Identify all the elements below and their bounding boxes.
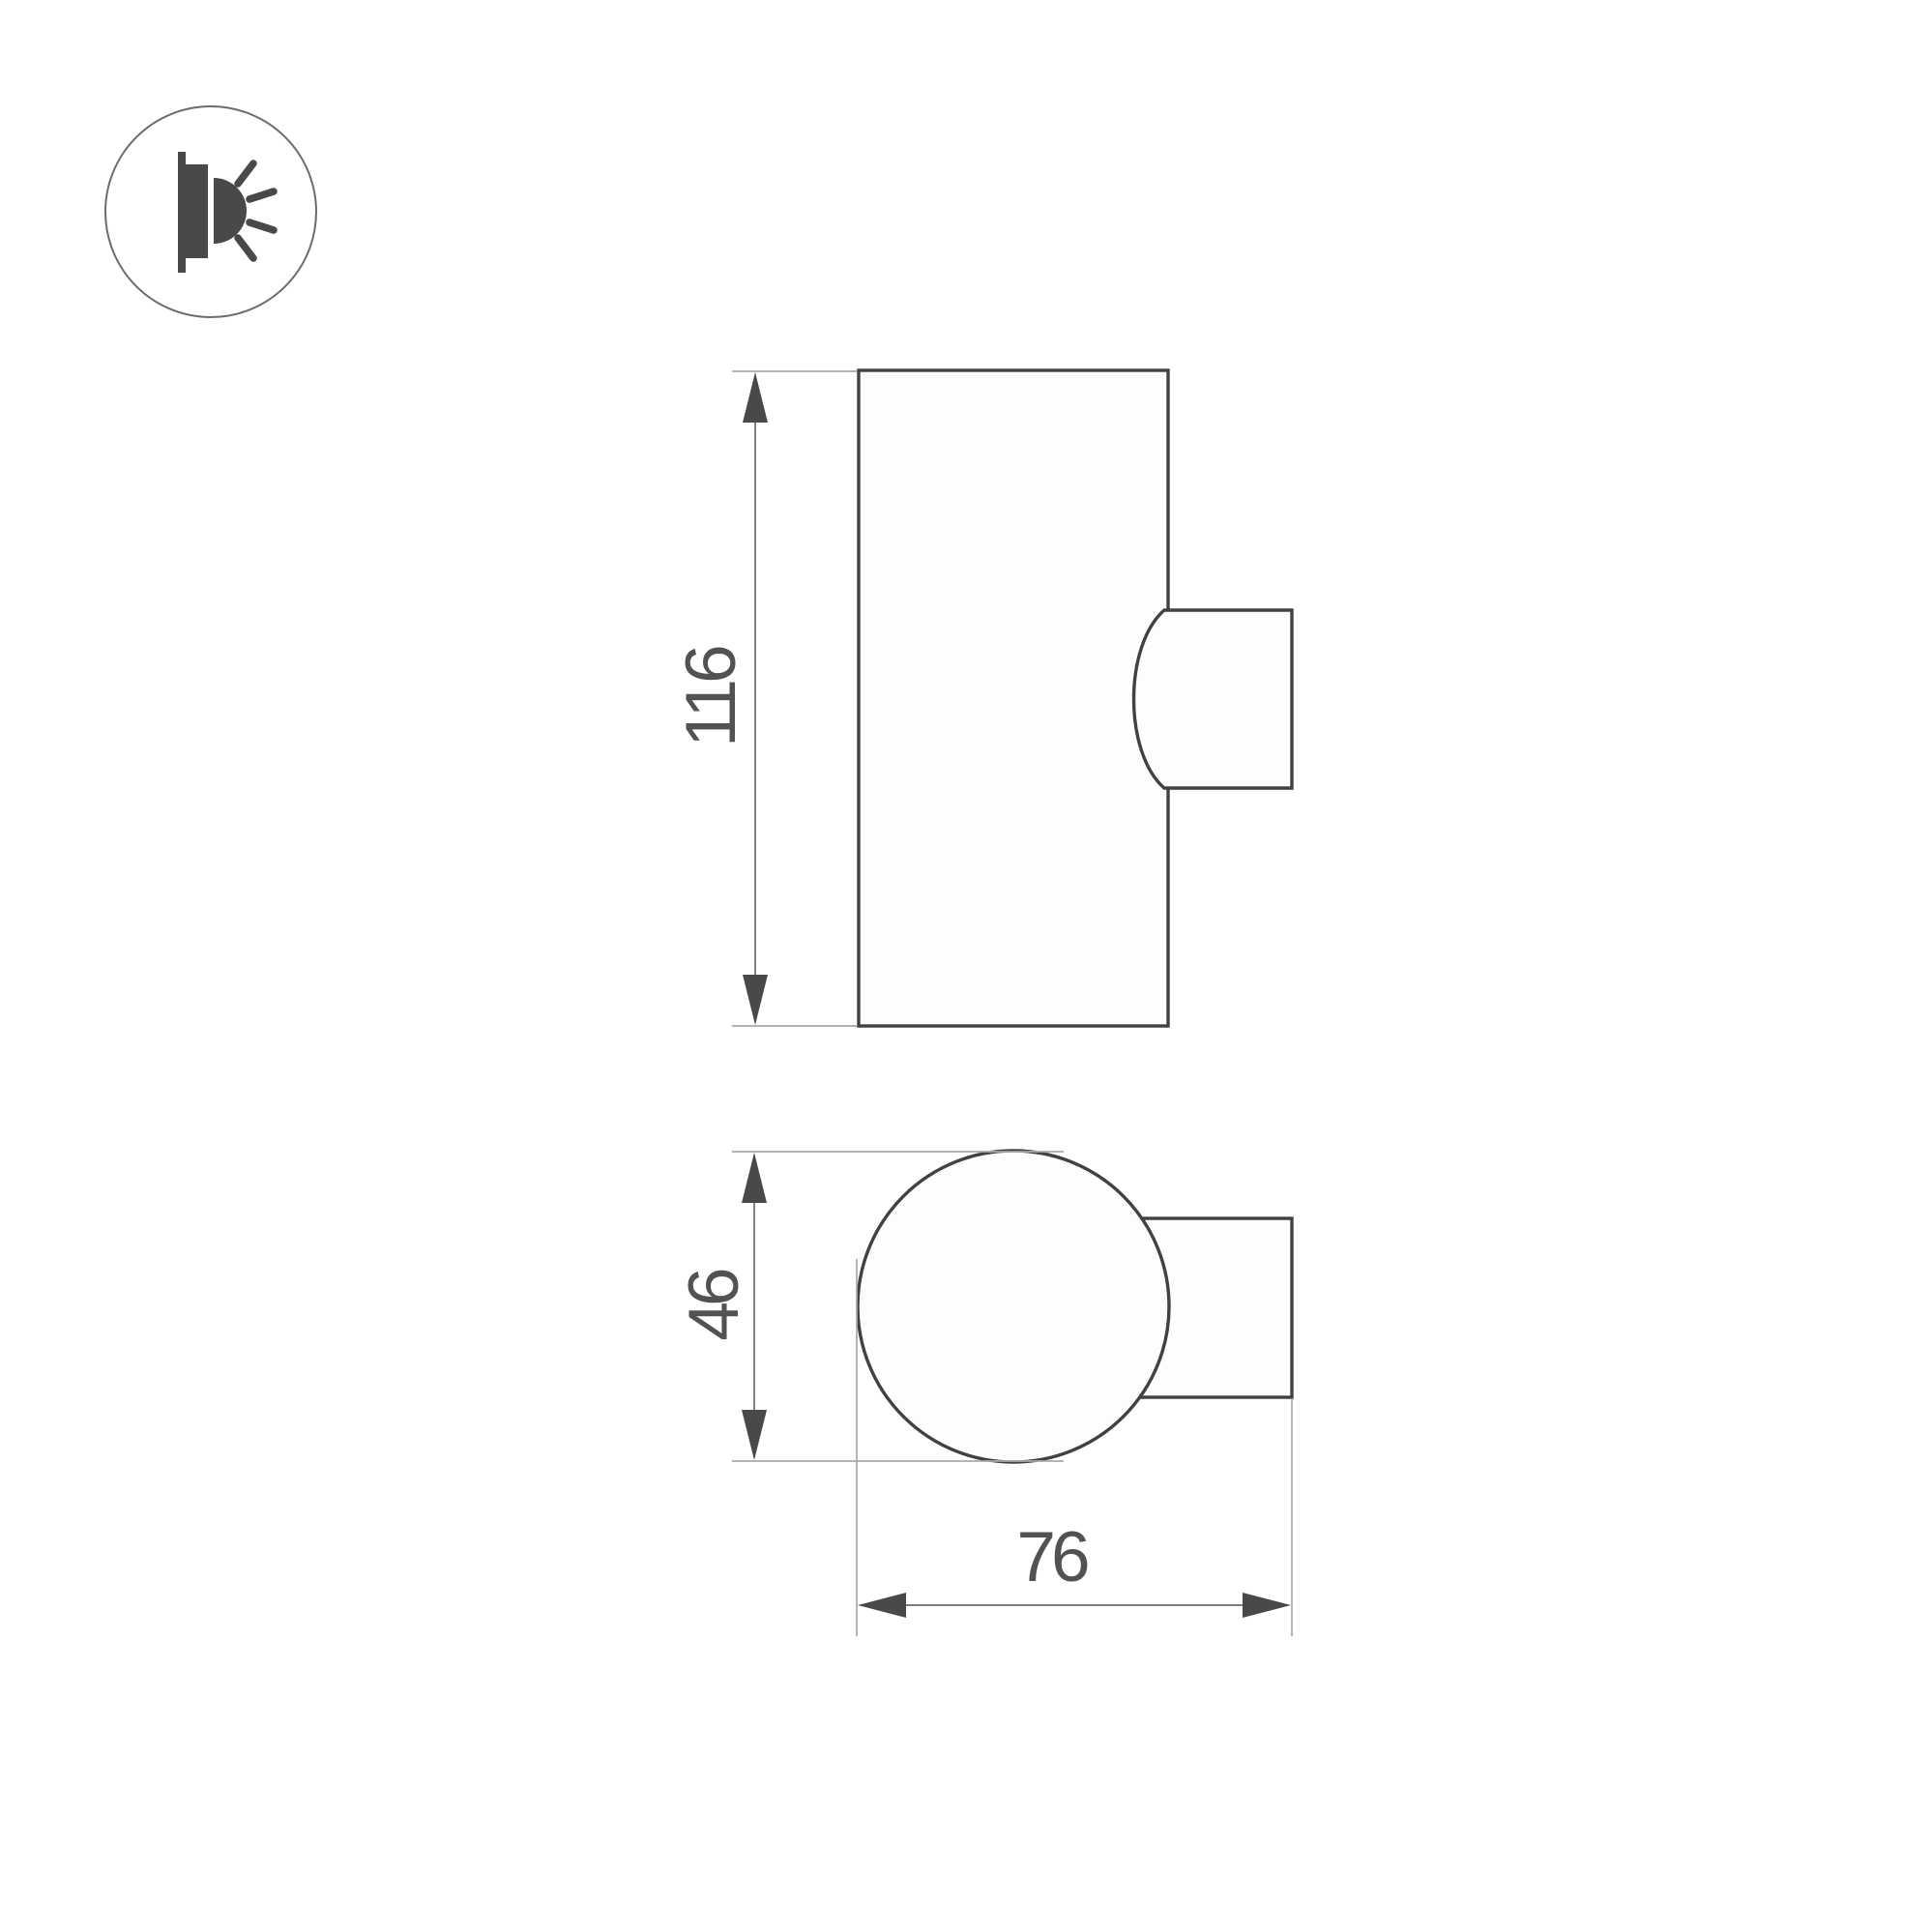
diameter-dimension-label: 46	[675, 1270, 753, 1341]
icon-ray-3	[249, 222, 274, 230]
icon-circle-border	[105, 106, 316, 317]
front-view: 116	[672, 370, 1292, 1026]
depth-dimension-label: 76	[1016, 1518, 1088, 1596]
wall-light-icon	[105, 106, 316, 317]
technical-drawing-canvas: 116 46	[0, 0, 1932, 1932]
height-dimension: 116	[672, 371, 857, 1026]
mount-bracket-front	[1134, 610, 1293, 788]
lamp-body-top	[858, 1151, 1169, 1462]
icon-lamp-body	[183, 164, 208, 258]
top-view: 46 76	[675, 1151, 1292, 1636]
icon-ray-1	[238, 163, 253, 184]
height-dimension-label: 116	[672, 647, 750, 747]
icon-light-halfdisc	[214, 178, 247, 244]
height-arrow-up	[743, 372, 768, 423]
icon-ray-2	[249, 191, 274, 199]
diameter-arrow-down	[742, 1410, 767, 1460]
height-arrow-down	[743, 975, 768, 1025]
lamp-body-front	[859, 370, 1168, 1026]
depth-arrow-right	[1243, 1593, 1291, 1618]
icon-ray-4	[238, 238, 253, 258]
diameter-arrow-up	[742, 1153, 767, 1203]
depth-arrow-left	[858, 1593, 906, 1618]
